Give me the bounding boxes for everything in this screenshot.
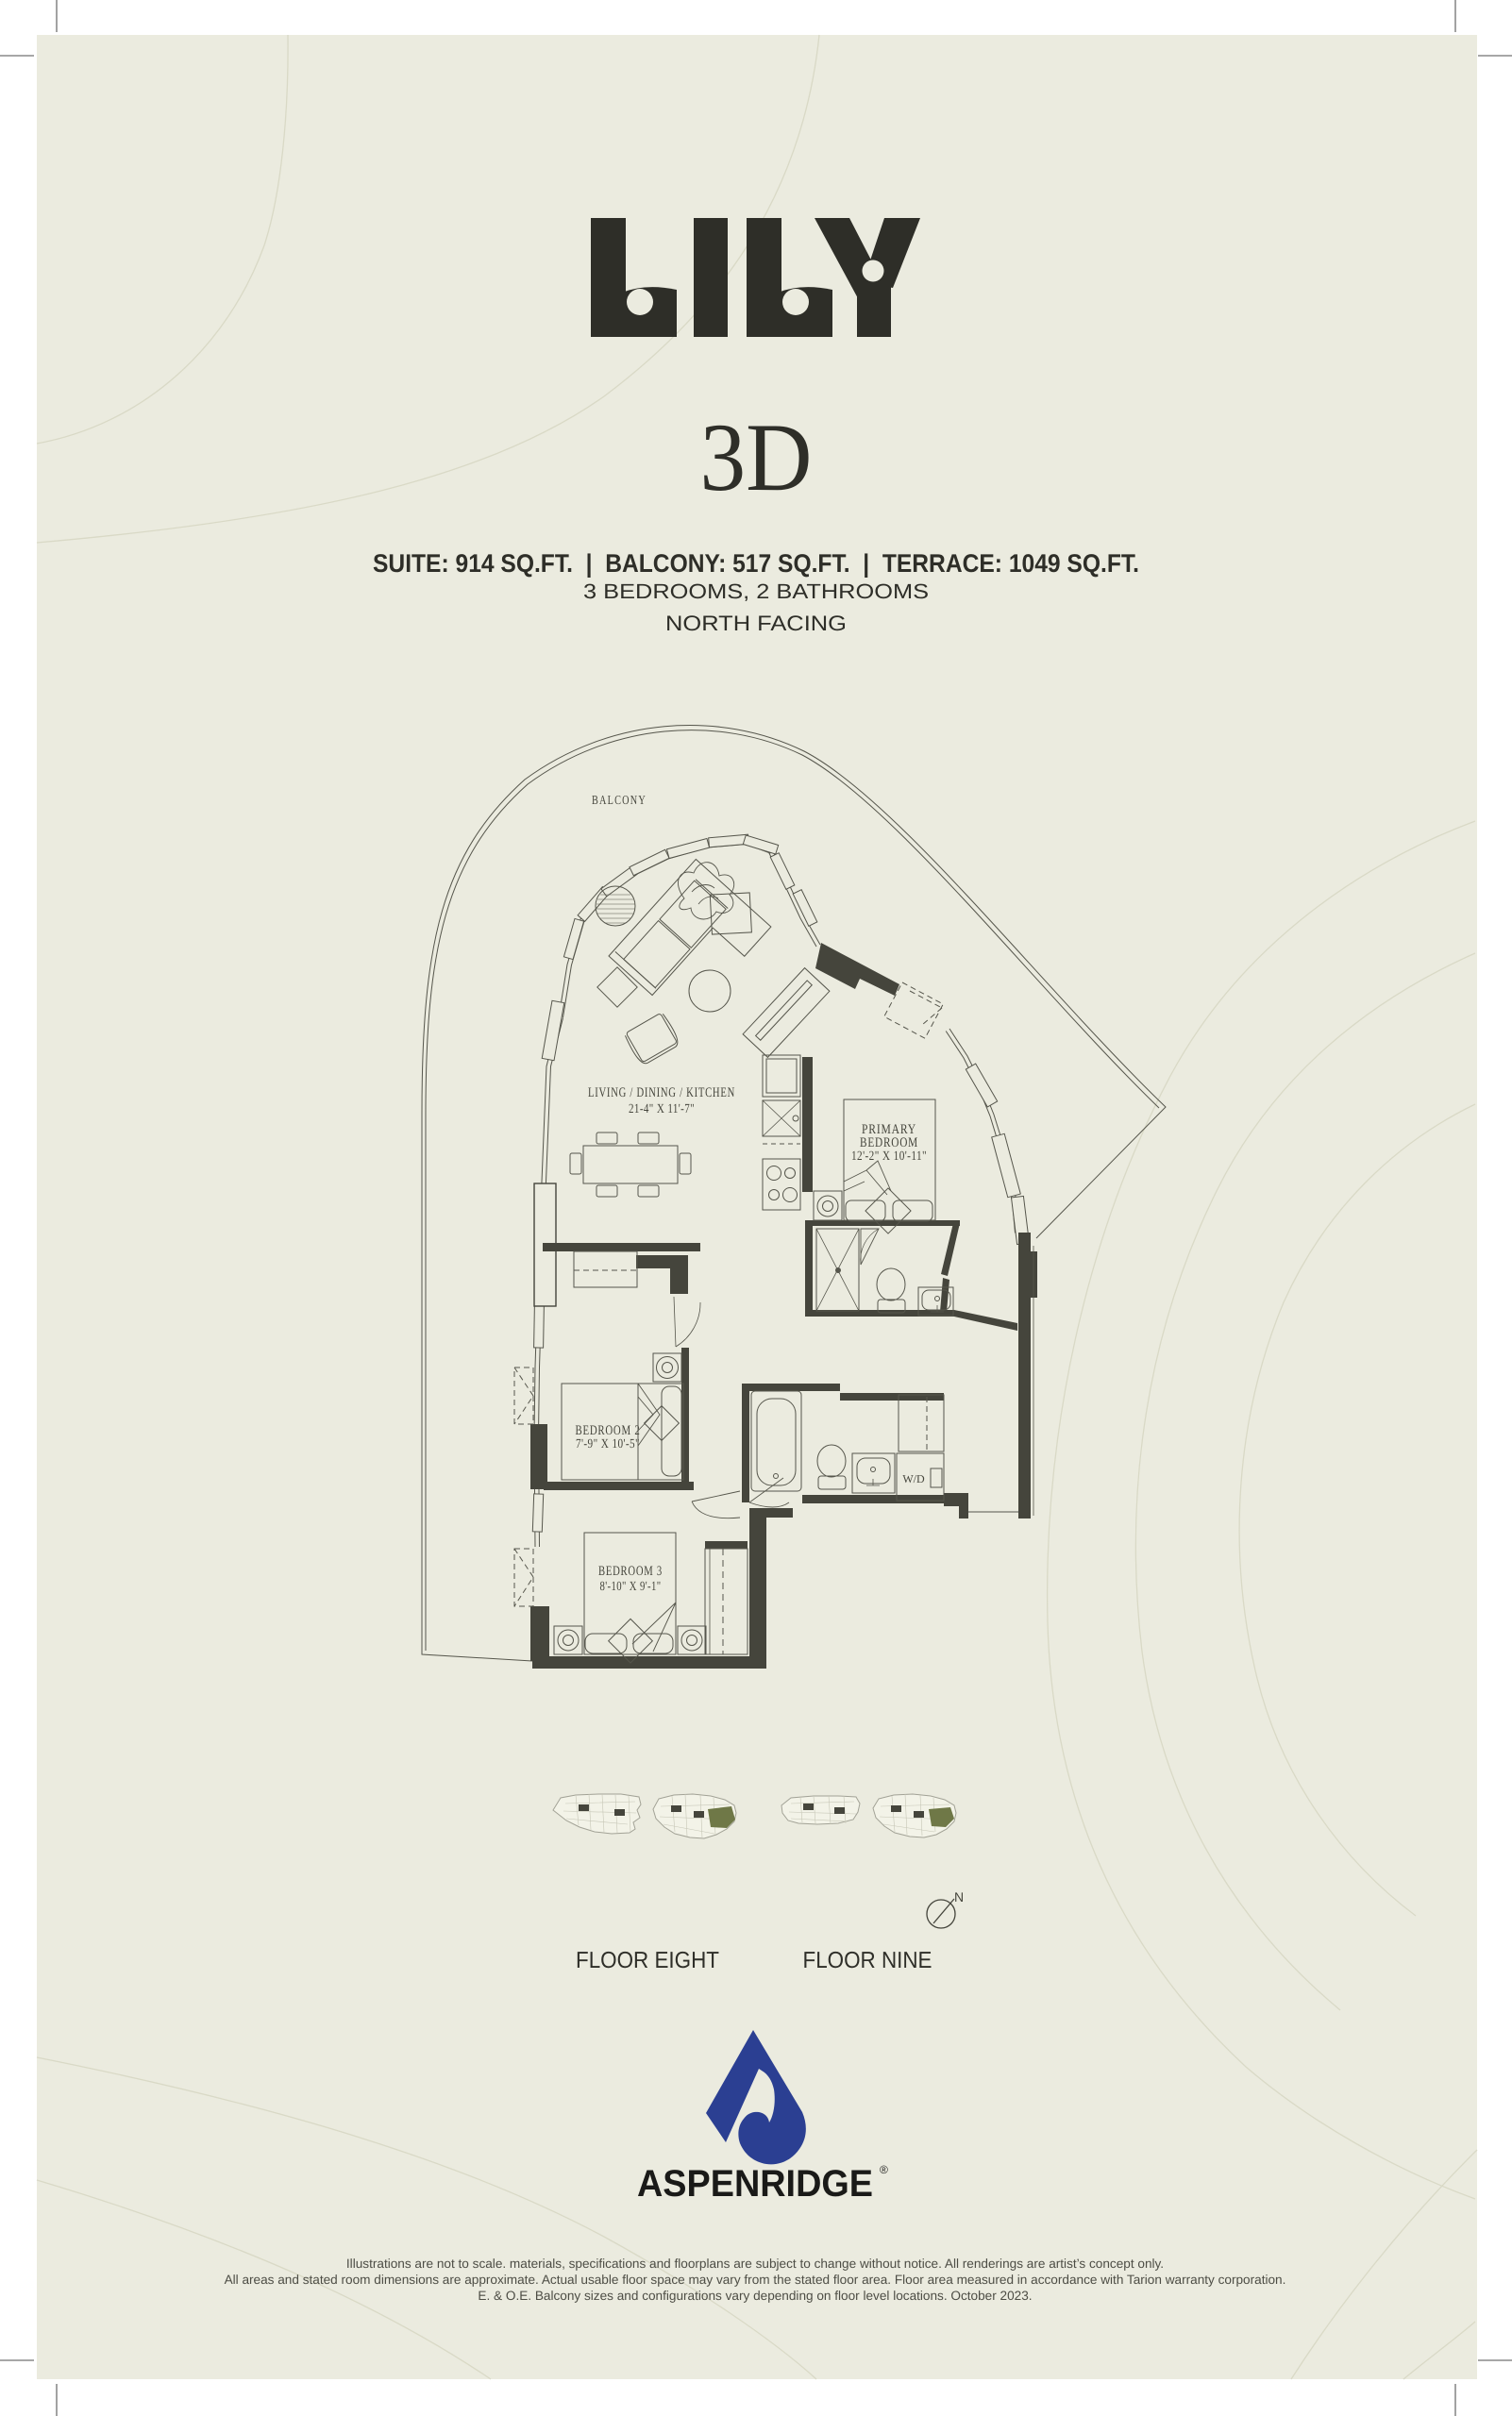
svg-text:FLOOR NINE: FLOOR NINE xyxy=(803,1948,932,1973)
svg-text:BEDROOM 3: BEDROOM 3 xyxy=(598,1564,663,1579)
svg-text:12'-2" X 10'-11": 12'-2" X 10'-11" xyxy=(851,1149,927,1164)
svg-text:NORTH FACING: NORTH FACING xyxy=(665,612,847,635)
svg-text:FLOOR EIGHT: FLOOR EIGHT xyxy=(576,1948,719,1973)
svg-text:W/D: W/D xyxy=(902,1472,925,1485)
svg-text:All areas and stated room dime: All areas and stated room dimensions are… xyxy=(225,2273,1286,2287)
svg-text:BEDROOM: BEDROOM xyxy=(860,1135,918,1150)
svg-text:3D: 3D xyxy=(700,404,813,512)
svg-text:®: ® xyxy=(880,2163,888,2176)
svg-text:BEDROOM 2: BEDROOM 2 xyxy=(576,1423,641,1438)
svg-text:7'-9" X 10'-5": 7'-9" X 10'-5" xyxy=(576,1437,640,1451)
svg-text:N: N xyxy=(954,1889,964,1904)
svg-text:SUITE: 914 SQ.FT. | BALCONY:: SUITE: 914 SQ.FT. | BALCONY: 517 SQ.FT. … xyxy=(373,549,1139,578)
svg-text:LIVING / DINING / KITCHEN: LIVING / DINING / KITCHEN xyxy=(588,1085,735,1100)
svg-text:Illustrations are not to scale: Illustrations are not to scale. material… xyxy=(346,2257,1164,2271)
svg-text:3 BEDROOMS, 2 BATHROOMS: 3 BEDROOMS, 2 BATHROOMS xyxy=(583,579,929,603)
svg-text:ASPENRIDGE: ASPENRIDGE xyxy=(637,2163,873,2205)
svg-text:BALCONY: BALCONY xyxy=(592,793,647,807)
svg-text:21-4" X 11'-7": 21-4" X 11'-7" xyxy=(629,1102,695,1116)
svg-text:E. & O.E. Balcony sizes and co: E. & O.E. Balcony sizes and configuratio… xyxy=(478,2289,1032,2303)
svg-text:8'-10" X 9'-1": 8'-10" X 9'-1" xyxy=(600,1580,662,1594)
